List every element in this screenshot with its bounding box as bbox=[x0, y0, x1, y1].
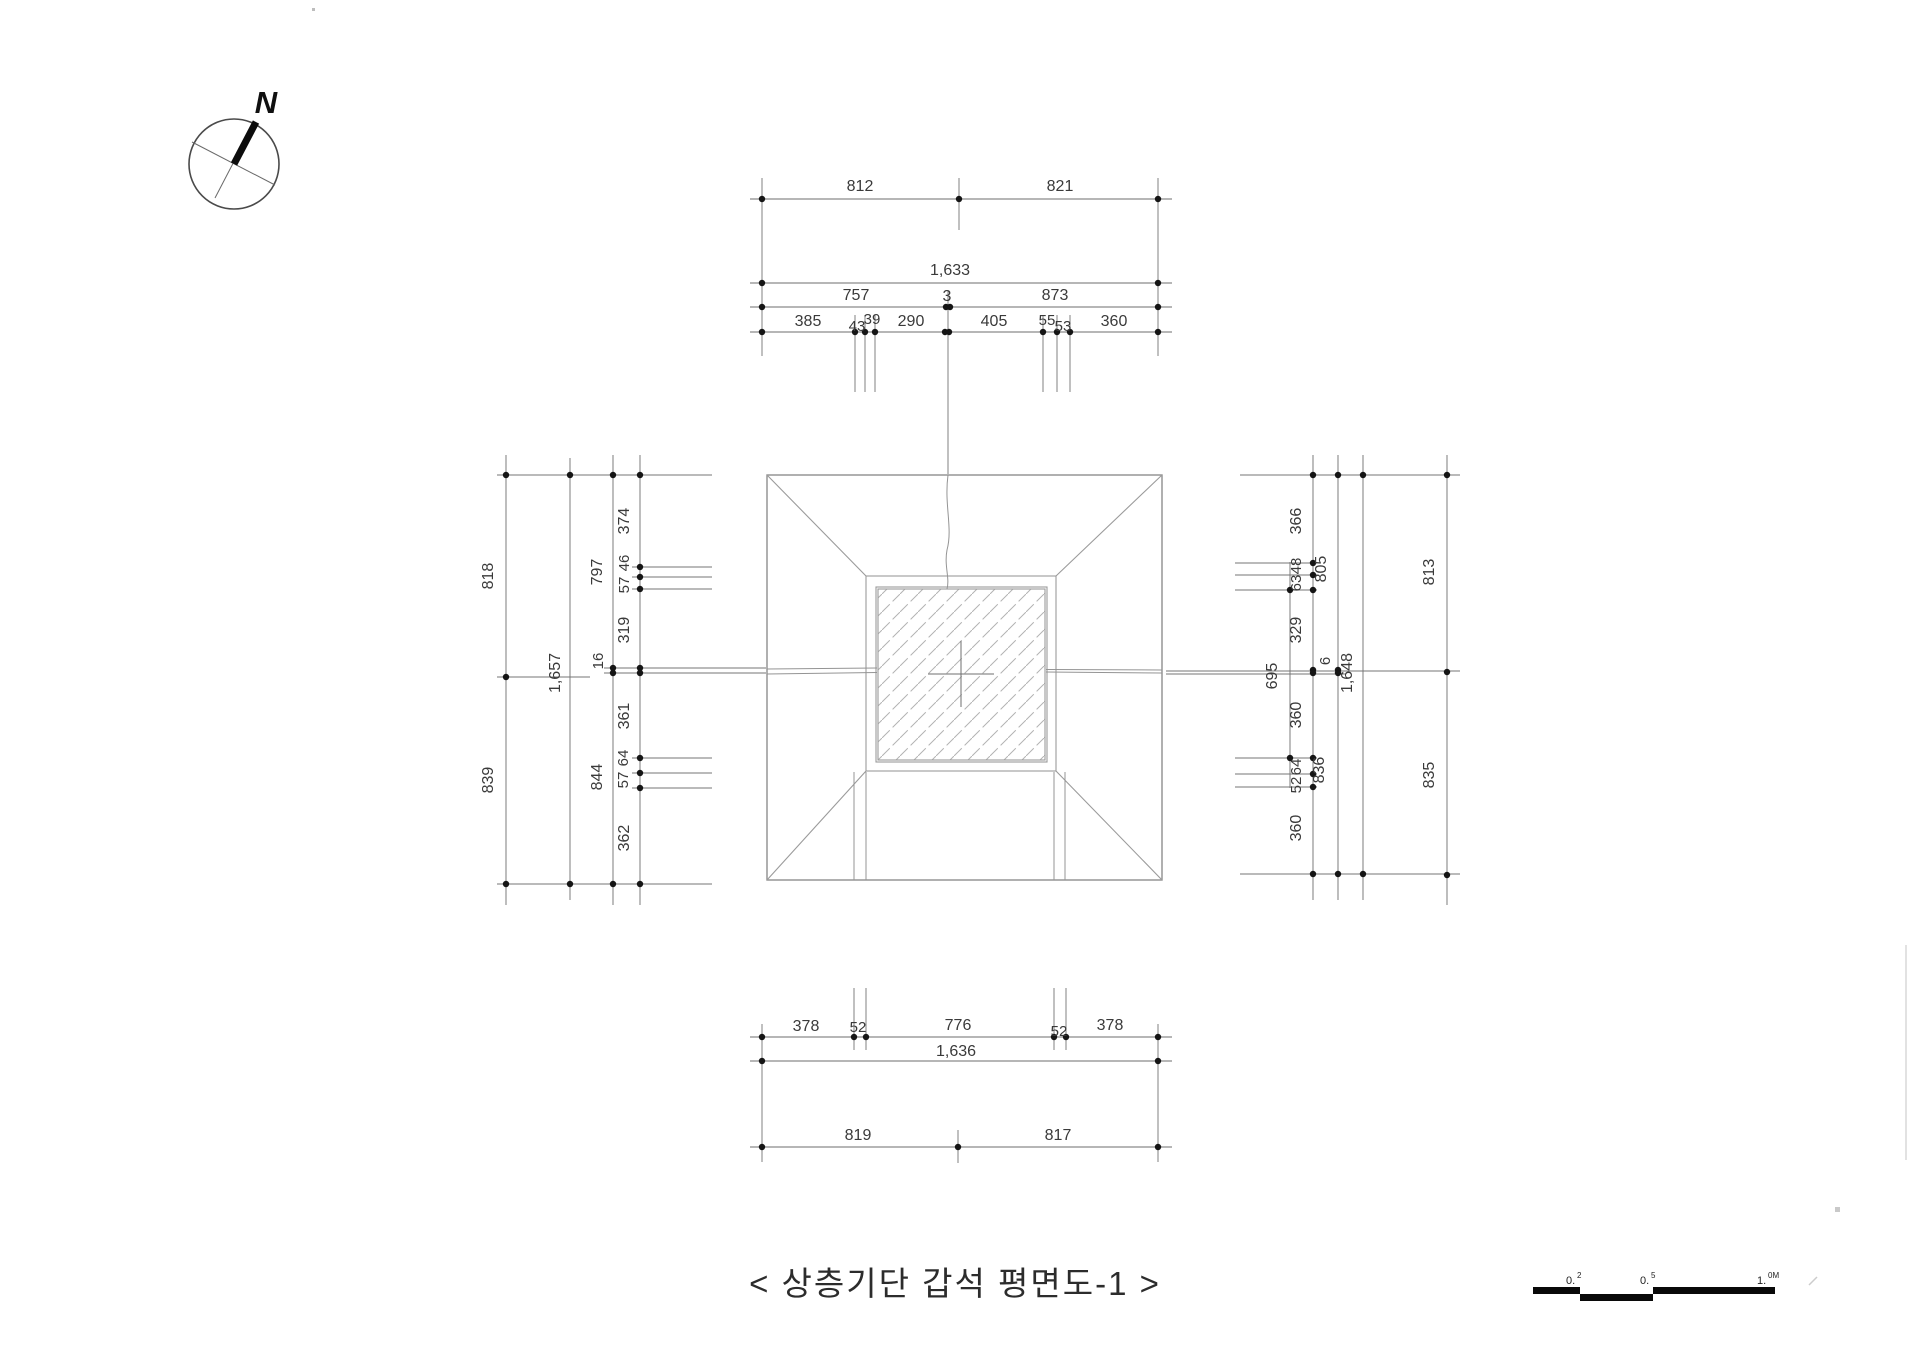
dim-label: 64 bbox=[615, 750, 632, 767]
dim-label: 839 bbox=[480, 767, 497, 794]
north-compass: N bbox=[189, 85, 279, 209]
dim-label: 835 bbox=[1421, 762, 1438, 789]
dim-label: 3 bbox=[943, 288, 952, 305]
dim-label: 360 bbox=[1288, 702, 1305, 729]
dim-label: 813 bbox=[1421, 559, 1438, 586]
scale-label-sup: 0M bbox=[1768, 1271, 1779, 1280]
dim-label: 360 bbox=[1101, 313, 1128, 330]
plan-drawing-canvas: N 812 821 1,633 757 3 873 385 43 39 290 … bbox=[0, 0, 1920, 1356]
dim-label: 873 bbox=[1042, 287, 1069, 304]
dim-label: 52 bbox=[1051, 1023, 1068, 1040]
dim-label: 819 bbox=[845, 1127, 872, 1144]
dim-label: 374 bbox=[616, 508, 633, 535]
north-needle-icon bbox=[234, 122, 256, 164]
dim-label: 319 bbox=[616, 617, 633, 644]
dim-label: 797 bbox=[589, 559, 606, 586]
scale-label: 0. bbox=[1566, 1275, 1575, 1287]
left-dimensions: 818 839 1,657 797 16 844 374 46 57 319 3… bbox=[480, 455, 766, 905]
dim-label: 362 bbox=[616, 825, 633, 852]
dim-label: 385 bbox=[795, 313, 822, 330]
dim-label: 805 bbox=[1313, 556, 1330, 583]
dim-label: 16 bbox=[590, 653, 607, 670]
dim-label: 1,648 bbox=[1339, 653, 1356, 693]
bottom-slab-joint-lines bbox=[854, 772, 1065, 880]
dim-label: 776 bbox=[945, 1017, 972, 1034]
dim-label: 64 bbox=[1288, 759, 1305, 776]
dim-label: 818 bbox=[480, 563, 497, 590]
scale-bar-segment bbox=[1580, 1294, 1653, 1301]
scan-artifact bbox=[312, 8, 315, 11]
dim-label: 821 bbox=[1047, 178, 1074, 195]
dim-label: 378 bbox=[1097, 1017, 1124, 1034]
dim-label: 1,633 bbox=[930, 262, 970, 279]
scale-label: 1. bbox=[1757, 1275, 1766, 1287]
dim-label: 695 bbox=[1264, 663, 1281, 690]
dim-label: 6 bbox=[1317, 657, 1334, 665]
dim-label: 366 bbox=[1288, 508, 1305, 535]
dim-label: 361 bbox=[616, 703, 633, 730]
north-label: N bbox=[255, 85, 278, 120]
dim-label: 1,636 bbox=[936, 1043, 976, 1060]
dim-label: 329 bbox=[1288, 617, 1305, 644]
dim-label: 53 bbox=[1055, 318, 1072, 335]
dim-label: 55 bbox=[1039, 312, 1056, 329]
drawing-title: < 상층기단 갑석 평면도-1 > bbox=[749, 1265, 1161, 1302]
extension-lines bbox=[762, 988, 1158, 1163]
capstone-plan bbox=[767, 475, 1162, 880]
dim-label: 48 bbox=[1288, 558, 1305, 575]
drawing-sheet: N 812 821 1,633 757 3 873 385 43 39 290 … bbox=[0, 0, 1920, 1356]
scan-artifact bbox=[1835, 1207, 1840, 1212]
top-dimensions: 812 821 1,633 757 3 873 385 43 39 290 40… bbox=[750, 178, 1172, 474]
extension-lines bbox=[497, 475, 766, 884]
dim-label: 57 bbox=[615, 772, 632, 789]
dim-label: 812 bbox=[847, 178, 874, 195]
dim-label: 836 bbox=[1311, 757, 1328, 784]
scale-label: 0. bbox=[1640, 1275, 1649, 1287]
top-slab-joint-line bbox=[946, 475, 949, 589]
bottom-dimensions: 378 52 776 52 378 1,636 819 817 bbox=[750, 988, 1172, 1163]
scale-bar: 0. 2 0. 5 1. 0M bbox=[1533, 1271, 1817, 1301]
dim-label: 52 bbox=[850, 1019, 867, 1036]
dim-label: 817 bbox=[1045, 1127, 1072, 1144]
tick-dots bbox=[1287, 472, 1450, 878]
right-dimensions: 695 366 48 63 329 360 64 52 360 805 6 83… bbox=[1166, 455, 1460, 905]
dim-label: 39 bbox=[864, 311, 881, 328]
dim-label: 46 bbox=[616, 555, 633, 572]
dim-label: 844 bbox=[589, 764, 606, 791]
dim-label: 290 bbox=[898, 313, 925, 330]
dim-label: 360 bbox=[1288, 815, 1305, 842]
dim-label: 57 bbox=[616, 577, 633, 594]
dim-label: 405 bbox=[981, 313, 1008, 330]
dim-label: 757 bbox=[843, 287, 870, 304]
dim-label: 1,657 bbox=[547, 653, 564, 693]
dimension-lines bbox=[1290, 455, 1447, 905]
dim-label: 52 bbox=[1288, 777, 1305, 794]
scale-bar-segment bbox=[1533, 1287, 1580, 1294]
dim-label: 378 bbox=[793, 1018, 820, 1035]
scale-bar-segment bbox=[1653, 1287, 1775, 1294]
extension-lines bbox=[762, 178, 1158, 474]
dim-label: 63 bbox=[1288, 575, 1305, 592]
scan-artifact bbox=[1809, 1277, 1817, 1285]
scale-label-sup: 2 bbox=[1577, 1271, 1582, 1280]
scale-label-sup: 5 bbox=[1651, 1271, 1656, 1280]
